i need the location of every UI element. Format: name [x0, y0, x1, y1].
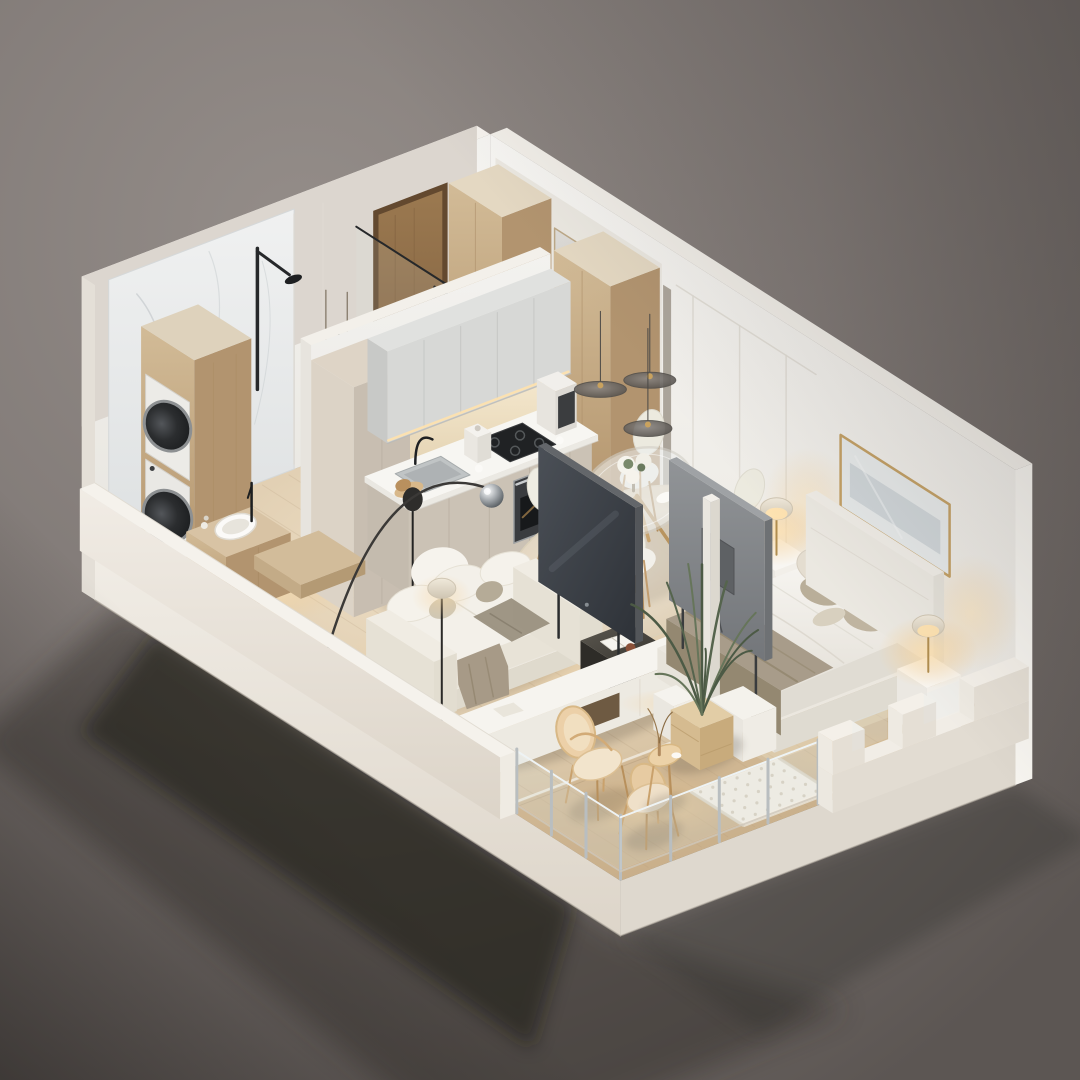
render-canvas — [0, 0, 1080, 1080]
apartment-isometric-render — [0, 0, 1080, 1080]
vignette-top-right — [0, 0, 1080, 1080]
